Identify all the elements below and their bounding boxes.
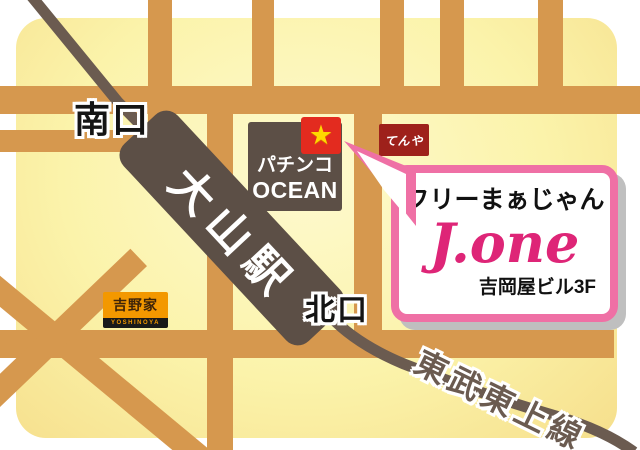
tenya-logo: てんや [379, 124, 429, 156]
yoshinoya-romaji: YOSHINOYA [103, 318, 168, 328]
access-map: 大 山 駅 パチンコ OCEAN ★ てんや 吉野家 YOSHINOYA 南口 … [0, 0, 640, 450]
tenya-logo-text: てんや [384, 132, 423, 149]
destination-marker: ★ [301, 117, 341, 154]
info-bubble: フリーまぁじゃん J.one 吉岡屋ビル3F [391, 165, 618, 322]
road-vertical-4 [440, 0, 464, 104]
north-exit-label: 北口 [305, 296, 369, 326]
building-floor-label: 吉岡屋ビル3F [399, 272, 610, 299]
road-vertical-2 [252, 0, 274, 104]
yoshinoya-logo-text: 吉野家 [103, 292, 168, 318]
ocean-label: OCEAN [252, 177, 338, 204]
south-exit-label: 南口 [74, 102, 150, 138]
pachinko-label: パチンコ [257, 150, 333, 177]
brand-name: J.one [399, 216, 610, 271]
star-icon: ★ [309, 122, 333, 149]
road-vertical-3 [380, 0, 404, 104]
road-vertical-5 [538, 0, 563, 104]
yoshinoya-logo: 吉野家 YOSHINOYA [103, 292, 168, 328]
